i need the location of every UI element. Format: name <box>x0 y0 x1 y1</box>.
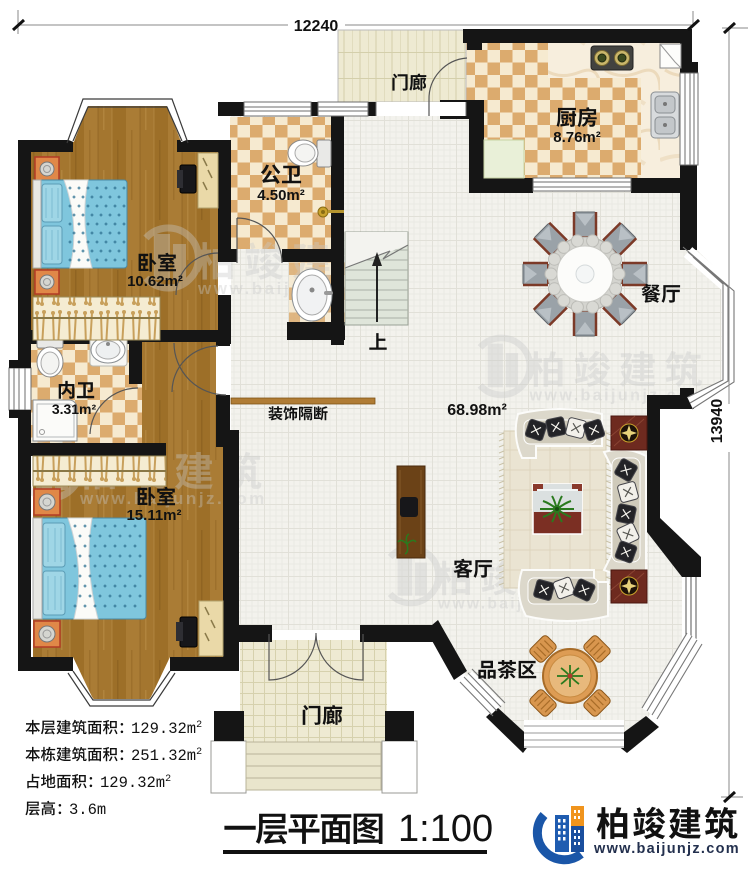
svg-text:4.50m²: 4.50m² <box>257 187 305 204</box>
svg-text:129.32m2: 129.32m2 <box>131 720 202 738</box>
svg-text:10.62m²: 10.62m² <box>127 273 183 290</box>
svg-text:1:100: 1:100 <box>398 808 493 850</box>
svg-text:8.76m²: 8.76m² <box>553 129 601 146</box>
svg-text:15.11m²: 15.11m² <box>126 507 181 524</box>
svg-text:68.98m²: 68.98m² <box>447 402 507 419</box>
svg-text:129.32m2: 129.32m2 <box>100 774 171 792</box>
svg-text:3.31m²: 3.31m² <box>52 401 97 417</box>
svg-text:3.6m: 3.6m <box>69 801 106 819</box>
svg-text:www.baijunjz.com: www.baijunjz.com <box>593 841 740 857</box>
svg-text:12240: 12240 <box>294 18 339 35</box>
svg-text:13940: 13940 <box>709 399 726 444</box>
svg-text:251.32m2: 251.32m2 <box>131 747 202 765</box>
